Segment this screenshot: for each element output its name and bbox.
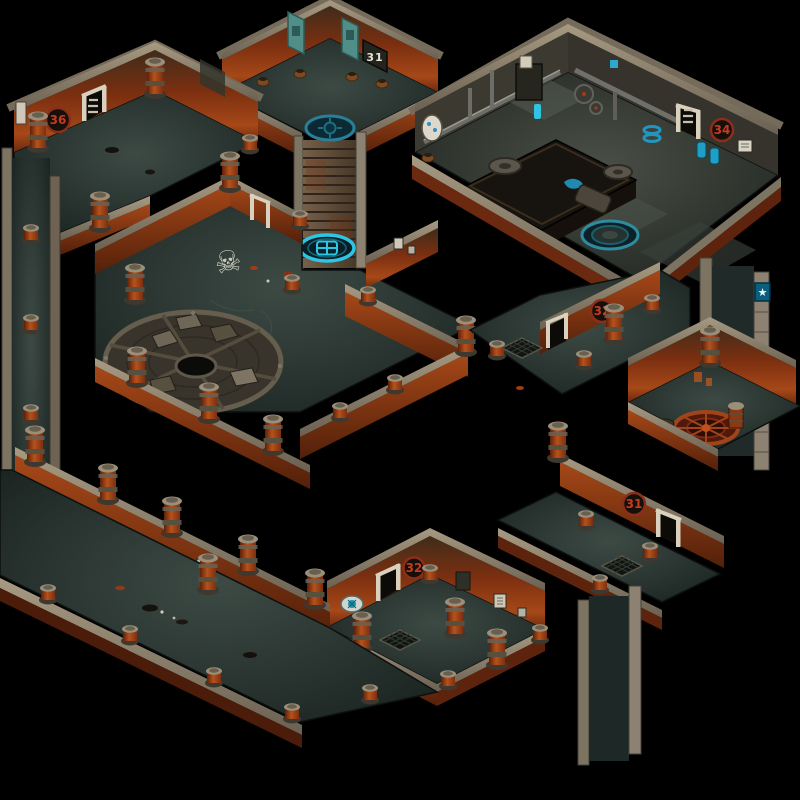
pillar-stump (22, 224, 40, 244)
machine-cabinet (516, 64, 542, 100)
bridge-rail (356, 132, 366, 268)
star-sign: ★ (755, 283, 770, 301)
wall-sign (408, 246, 415, 254)
debris (160, 610, 163, 613)
oval-wall-sign (341, 596, 363, 612)
debris (105, 147, 119, 153)
door-badge: 34 (711, 119, 733, 141)
wall-sign (394, 238, 403, 249)
pillar (197, 554, 219, 596)
debris (142, 605, 158, 612)
pillar-stump (439, 670, 457, 690)
pillar-stump (331, 402, 349, 422)
plate-label: 31 (366, 51, 383, 64)
gauge-dot (433, 128, 437, 132)
pillar-stump (488, 340, 506, 360)
pillar (219, 152, 241, 194)
pillar-stump (283, 703, 301, 723)
gear-hub (582, 92, 586, 96)
pillar-stump (641, 542, 659, 562)
drain-hole (176, 355, 216, 377)
door-number: 31 (626, 497, 643, 511)
pillar (444, 598, 466, 640)
pillar (547, 422, 569, 464)
pillar (144, 58, 166, 100)
blue-lamp (610, 60, 618, 68)
pillar-stump (531, 624, 549, 644)
rim-bolt (191, 311, 195, 315)
rim-bolt (278, 364, 282, 368)
rim-bolt (104, 356, 108, 360)
ember-glow (694, 372, 702, 382)
ladder-hatch[interactable] (300, 235, 354, 261)
wall-gauge (422, 115, 442, 141)
debris (516, 386, 524, 390)
pillar (455, 316, 477, 358)
banner-emblem (292, 26, 300, 36)
pillar (699, 327, 721, 369)
pillar (89, 192, 111, 234)
pillar-stump (575, 350, 593, 370)
pillar-stump (121, 625, 139, 645)
pillar-stump (359, 286, 377, 306)
pillar-stump (39, 584, 57, 604)
door-badge: 32 (404, 558, 425, 579)
pillar-stump (291, 210, 309, 230)
pillar (24, 426, 46, 468)
pillar-stump (22, 404, 40, 424)
door-number: 34 (714, 123, 731, 137)
manhole-top[interactable] (306, 116, 354, 140)
pillar-stump (205, 667, 223, 687)
barrel (728, 402, 744, 428)
pillar (237, 535, 259, 577)
pillar (124, 264, 146, 306)
pillar-stump (361, 684, 379, 704)
pump-top (613, 170, 623, 175)
pillar-stump (283, 274, 301, 294)
pillar-stump (643, 294, 661, 314)
debris (176, 620, 188, 625)
pillar (161, 497, 183, 539)
pillar (198, 383, 220, 425)
blue-tank (697, 142, 706, 158)
pillar-stump (22, 314, 40, 334)
debris (250, 266, 258, 270)
pillar-stump (386, 374, 404, 394)
machine-cabinet-top (520, 56, 532, 68)
pillar (97, 464, 119, 506)
wall-sign (738, 140, 752, 152)
star-icon: ★ (758, 286, 768, 299)
floor-south-corridor[interactable] (589, 596, 629, 761)
debris (267, 280, 270, 283)
gauge-dot (427, 122, 431, 126)
debris (115, 586, 125, 590)
pillar-stump (421, 564, 439, 584)
ladder-hatch-icon (317, 242, 337, 255)
manhole[interactable] (582, 221, 638, 249)
blue-valve[interactable] (534, 104, 541, 119)
door[interactable] (16, 102, 26, 124)
corridor-wall-rail (629, 586, 641, 754)
pillar (304, 569, 326, 611)
ember-glow (706, 378, 712, 386)
central-hall: ☠ (95, 152, 477, 490)
pillar (486, 629, 508, 671)
banner-emblem (346, 30, 354, 40)
map-canvas: 31 (0, 0, 800, 800)
wall-sign (518, 608, 526, 617)
blue-tank (710, 148, 719, 164)
stair-bridge (294, 116, 366, 272)
dungeon-map: 31 (0, 0, 800, 800)
debris (173, 617, 176, 620)
pump-top (499, 163, 511, 169)
corridor-wall-rail (578, 600, 589, 765)
debris (145, 170, 155, 175)
wall-panel (456, 572, 470, 590)
pillar (262, 415, 284, 457)
plank-rust-stain (306, 160, 326, 190)
pillar-stump (591, 574, 609, 594)
door-badge: 36 (46, 108, 70, 132)
gear-hub (594, 106, 597, 109)
door-number: 36 (50, 113, 67, 127)
door-number: 32 (406, 561, 423, 575)
pillar-stump (241, 134, 259, 154)
debris (243, 652, 257, 658)
door-badge: 31 (623, 493, 645, 515)
pillar (27, 112, 49, 154)
pillar-stump (577, 510, 595, 530)
pillar (603, 304, 625, 346)
pillar (126, 347, 148, 389)
